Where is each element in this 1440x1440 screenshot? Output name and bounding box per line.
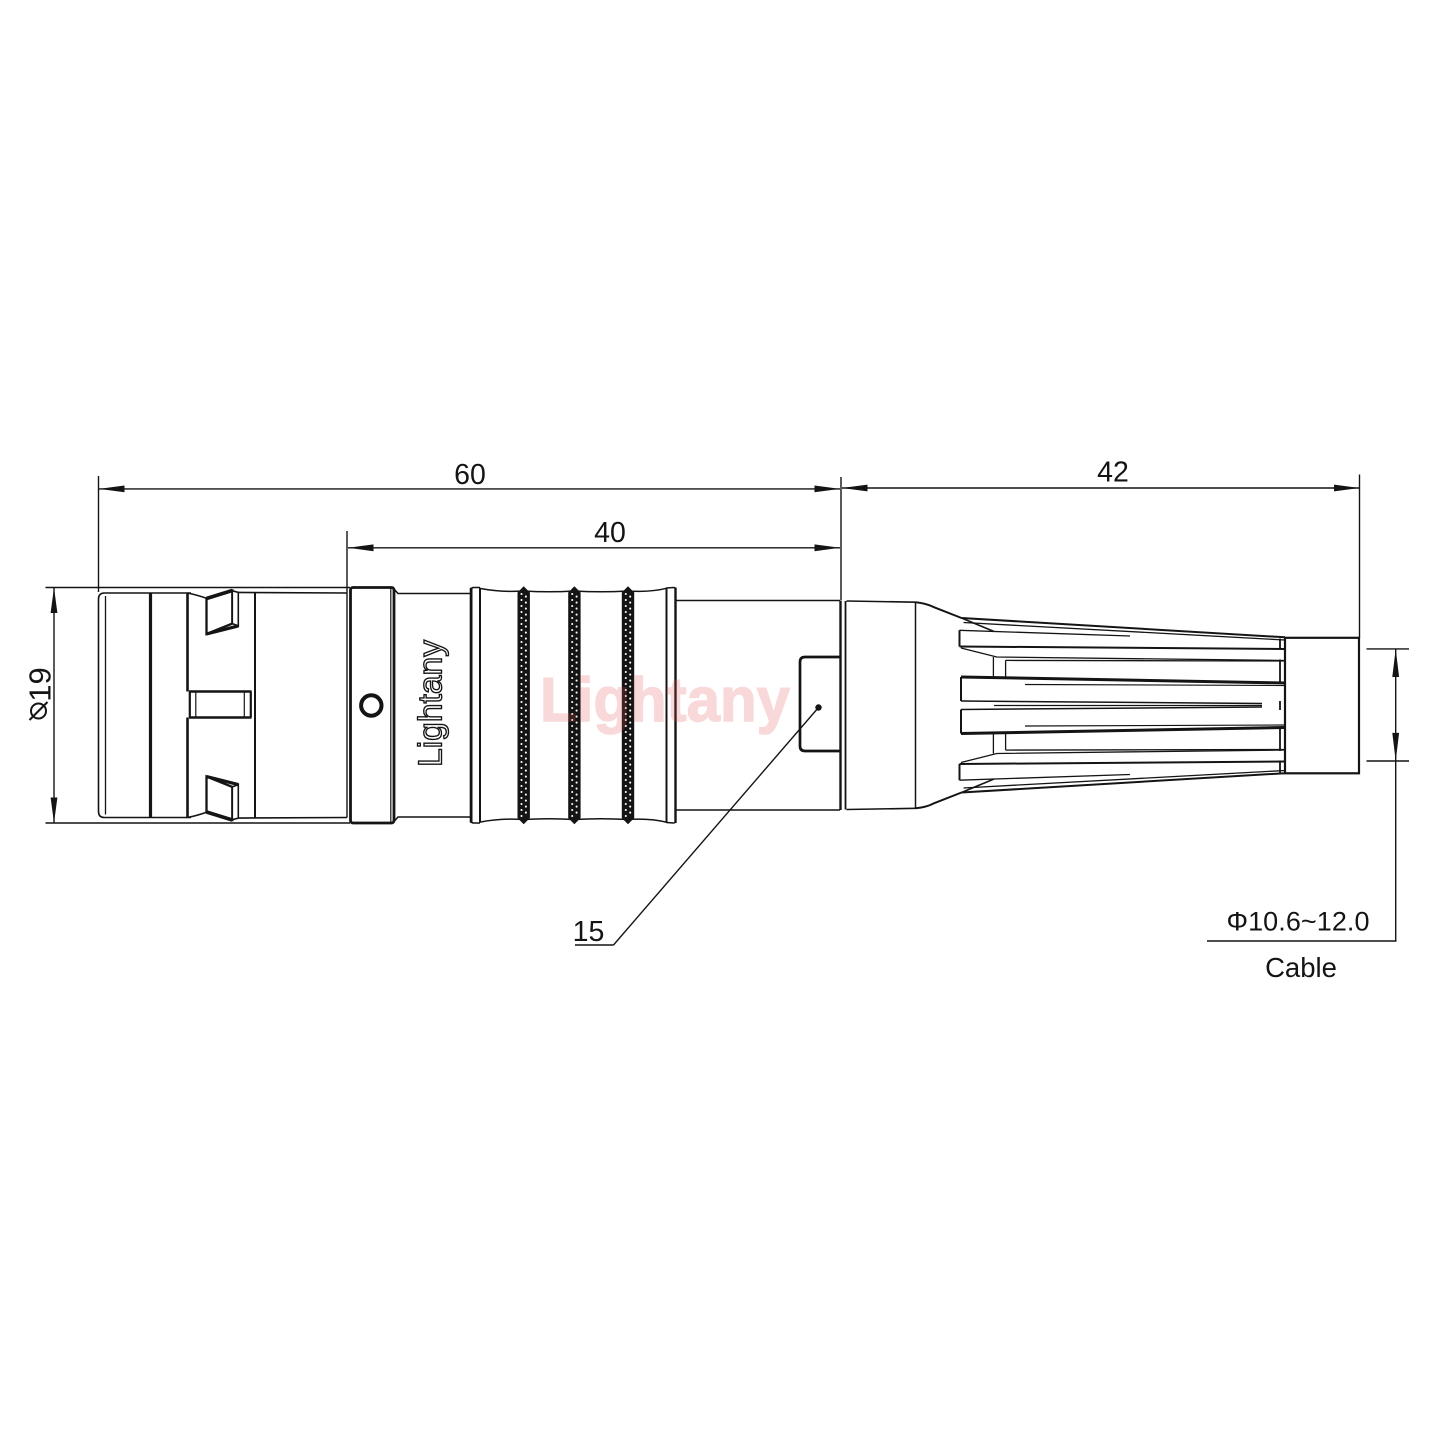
svg-text:60: 60: [454, 459, 486, 491]
svg-text:Φ10.6~12.0: Φ10.6~12.0: [1227, 907, 1370, 937]
svg-text:Lightany: Lightany: [412, 639, 449, 767]
svg-text:19: 19: [23, 667, 58, 701]
svg-text:40: 40: [594, 517, 626, 549]
svg-text:Cable: Cable: [1265, 952, 1337, 983]
svg-text:Lightany: Lightany: [540, 666, 790, 735]
svg-text:42: 42: [1097, 457, 1129, 489]
svg-text:15: 15: [573, 916, 605, 948]
